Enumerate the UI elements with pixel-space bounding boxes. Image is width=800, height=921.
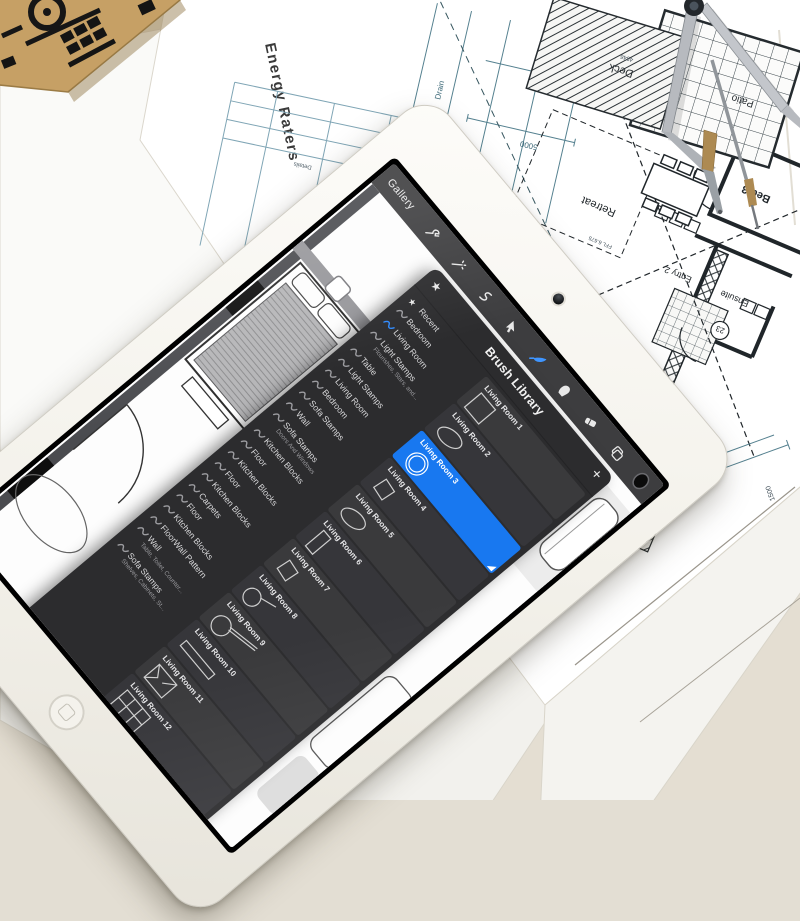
- wrench-icon[interactable]: [423, 223, 444, 244]
- eraser-icon[interactable]: [581, 411, 602, 432]
- front-camera-icon: [551, 291, 566, 306]
- selection-icon[interactable]: [476, 285, 497, 306]
- smudge-icon[interactable]: [555, 380, 576, 401]
- paint-brush-icon[interactable]: [528, 348, 549, 369]
- layers-icon[interactable]: [607, 442, 628, 463]
- svg-text:★: ★: [407, 296, 419, 308]
- color-swatch-icon[interactable]: [632, 472, 651, 491]
- modified-corner-notch-icon: [487, 561, 497, 571]
- magic-wand-icon[interactable]: [449, 254, 470, 275]
- transform-arrow-icon[interactable]: [502, 317, 523, 338]
- home-button[interactable]: [41, 687, 92, 738]
